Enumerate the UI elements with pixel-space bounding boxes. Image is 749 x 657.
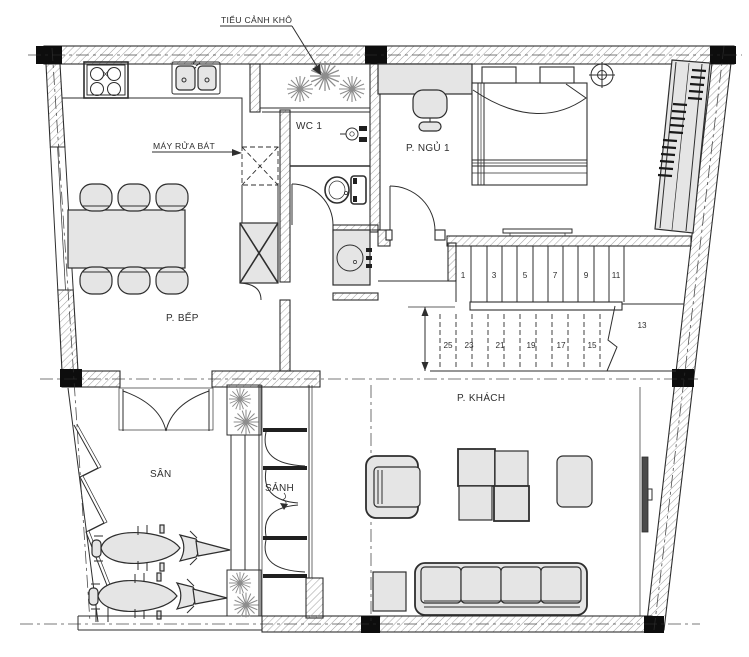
wc: WC 1 (292, 121, 372, 285)
landing-step-number: 13 (637, 321, 647, 330)
lavatory-bottom-wall (333, 293, 378, 300)
plant-icon (310, 61, 340, 91)
bedroom-label: P. NGỦ 1 (406, 141, 450, 154)
pillow (482, 67, 516, 83)
planter-left-wall (250, 64, 260, 112)
wc-door (292, 184, 333, 225)
column-bottom-right (644, 616, 664, 633)
lobby-label: SẢNH (265, 481, 294, 494)
lobby-wall-block (306, 578, 323, 618)
wc-label: WC 1 (296, 121, 322, 132)
corner-table (373, 572, 406, 611)
yard-front-wall (78, 616, 262, 630)
plant-icon (287, 76, 313, 102)
svg-text:15: 15 (587, 341, 597, 350)
kitchen-sink (172, 60, 220, 94)
motorbike (92, 525, 230, 571)
kitchen-label: P. BẾP (166, 311, 199, 324)
svg-text:21: 21 (495, 341, 505, 350)
stove (84, 62, 128, 98)
living-room: P. KHÁCH (366, 387, 652, 616)
svg-text:25: 25 (443, 341, 453, 350)
lavatory (333, 230, 372, 285)
wc-left-wall-upper (280, 110, 290, 282)
side-table (557, 456, 592, 507)
break-line (607, 306, 617, 371)
lobby-doors (263, 428, 307, 578)
counter-edge (62, 98, 242, 147)
upper-step-numbers: 1 3 5 7 9 11 (461, 271, 621, 280)
floor-plan-drawing: MÁY RỬA BÁT P. BẾP TIỂU CẢNH KHÔ WC 1 (0, 0, 749, 657)
svg-text:19: 19 (526, 341, 536, 350)
floor-plan: MÁY RỬA BÁT P. BẾP TIỂU CẢNH KHÔ WC 1 (0, 0, 749, 657)
bed (472, 67, 587, 185)
shower-icon (340, 126, 367, 142)
dry-garden-label: TIỂU CẢNH KHÔ (221, 14, 292, 25)
svg-text:5: 5 (523, 271, 528, 280)
svg-text:23: 23 (464, 341, 474, 350)
svg-text:11: 11 (612, 271, 621, 280)
bedroom-bottom-wall (447, 236, 691, 246)
desk-chair (413, 90, 447, 131)
kitchen: MÁY RỬA BÁT P. BẾP (62, 60, 278, 324)
stair-hall-wall (448, 243, 456, 281)
svg-text:9: 9 (584, 271, 589, 280)
svg-text:3: 3 (492, 271, 497, 280)
planter-window (262, 108, 370, 112)
plant-icon (229, 572, 251, 594)
coffee-table (458, 449, 529, 521)
toilet (325, 176, 366, 204)
svg-text:7: 7 (553, 271, 558, 280)
double-door (119, 388, 213, 431)
bedroom: P. NGỦ 1 (378, 60, 710, 240)
handrail (470, 302, 622, 310)
lobby: SẢNH (263, 385, 312, 578)
dishwasher-box (242, 147, 278, 185)
plant-icon (234, 593, 259, 618)
sofa (415, 563, 587, 615)
svg-text:1: 1 (461, 271, 466, 280)
plant-icon (229, 388, 251, 410)
bedroom-door (386, 186, 445, 240)
motorbike (89, 573, 227, 619)
column-bottom-mid (361, 616, 380, 633)
column-left-mid (60, 369, 82, 387)
planter-strip (227, 385, 262, 617)
column-right-mid (672, 369, 694, 387)
yard: SÂN (68, 388, 262, 630)
left-wall-lower (58, 290, 78, 371)
rounded-shelf-end (240, 283, 261, 300)
dry-garden-annotation: TIỂU CẢNH KHÔ (220, 14, 321, 75)
plant-icon (234, 410, 259, 435)
svg-text:17: 17 (556, 341, 566, 350)
dining-table (68, 210, 185, 268)
yard-label: SÂN (150, 467, 171, 480)
wc-left-wall-lower (280, 300, 290, 371)
ceiling-fan-icon (589, 62, 615, 88)
shaft-box (240, 223, 278, 283)
wall-shelf (503, 229, 572, 236)
tv (642, 457, 652, 532)
stair-dimension-line (408, 307, 455, 371)
dishwasher-annotation: MÁY RỬA BÁT (152, 140, 242, 156)
dishwasher-label: MÁY RỬA BÁT (153, 140, 216, 151)
armchair (366, 456, 420, 518)
stairs: 1 3 5 7 9 11 25 23 21 19 17 (378, 246, 684, 371)
plant-icon (339, 76, 365, 102)
living-room-label: P. KHÁCH (457, 391, 505, 404)
pillow (540, 67, 574, 83)
